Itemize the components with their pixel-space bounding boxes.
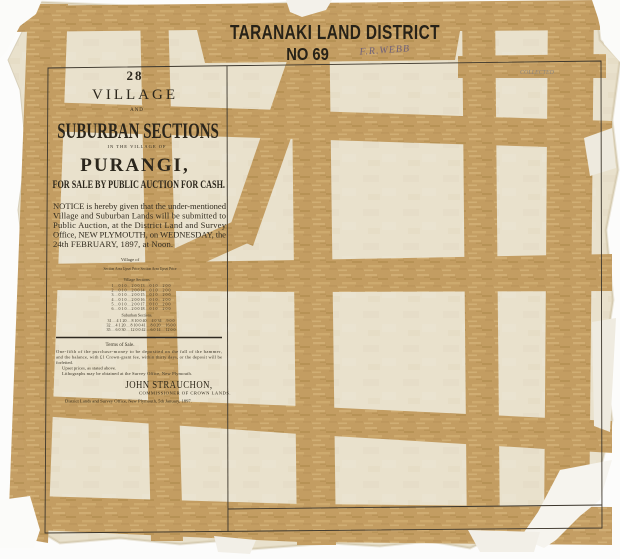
svg-text:FOR SALE BY PUBLIC AUCTION FOR: FOR SALE BY PUBLIC AUCTION FOR CASH. bbox=[52, 179, 225, 192]
svg-text:Suburban Sections.: Suburban Sections. bbox=[122, 313, 153, 318]
svg-text:Village and Suburban Lands wil: Village and Suburban Lands will be submi… bbox=[53, 211, 226, 221]
svg-text:AND: AND bbox=[130, 108, 144, 113]
svg-text:28: 28 bbox=[127, 68, 144, 83]
svg-text:Village of: Village of bbox=[121, 257, 140, 262]
svg-text:NO 69: NO 69 bbox=[286, 45, 329, 65]
svg-text:Village Sections.: Village Sections. bbox=[123, 277, 150, 282]
svg-text:IN THE VILLAGE OF: IN THE VILLAGE OF bbox=[108, 144, 167, 149]
svg-text:Terms of Sale.: Terms of Sale. bbox=[106, 343, 135, 348]
svg-text:SUBURBAN SECTIONS: SUBURBAN SECTIONS bbox=[57, 119, 219, 144]
svg-text:35 . . 6 0 30 . . 12 0 0: 35 . . 6 0 30 . . 12 0 0 42 . . 6 0 14 .… bbox=[107, 327, 176, 332]
svg-text:Office, NEW PLYMOUTH, on WEDNE: Office, NEW PLYMOUTH, on WEDNESDAY, the bbox=[53, 230, 226, 240]
svg-text:PURANGI,: PURANGI, bbox=[80, 155, 189, 176]
svg-text:COLLECTED: COLLECTED bbox=[520, 70, 555, 76]
svg-text:TARANAKI LAND DISTRICT: TARANAKI LAND DISTRICT bbox=[230, 21, 440, 43]
svg-text:COMMISSIONER OF CROWN LANDS.: COMMISSIONER OF CROWN LANDS. bbox=[139, 391, 231, 396]
svg-text:24th FEBRUARY, 1897, at Noon.: 24th FEBRUARY, 1897, at Noon. bbox=[53, 239, 173, 249]
svg-text:6 . . 0 1 0 . . 2 0 0 18: 6 . . 0 1 0 . . 2 0 0 18 . . 0 1 0 . . 2… bbox=[112, 306, 171, 311]
svg-text:Section Area Upset Price: Section Area Upset Price Section Area Up… bbox=[104, 267, 177, 271]
svg-text:Public Auction, at the Distric: Public Auction, at the District Land and… bbox=[53, 220, 227, 230]
svg-text:VILLAGE: VILLAGE bbox=[92, 87, 178, 103]
svg-text:NOTICE is hereby given that th: NOTICE is hereby given that the under-me… bbox=[53, 201, 227, 211]
svg-text:forfeited.: forfeited. bbox=[56, 360, 73, 365]
